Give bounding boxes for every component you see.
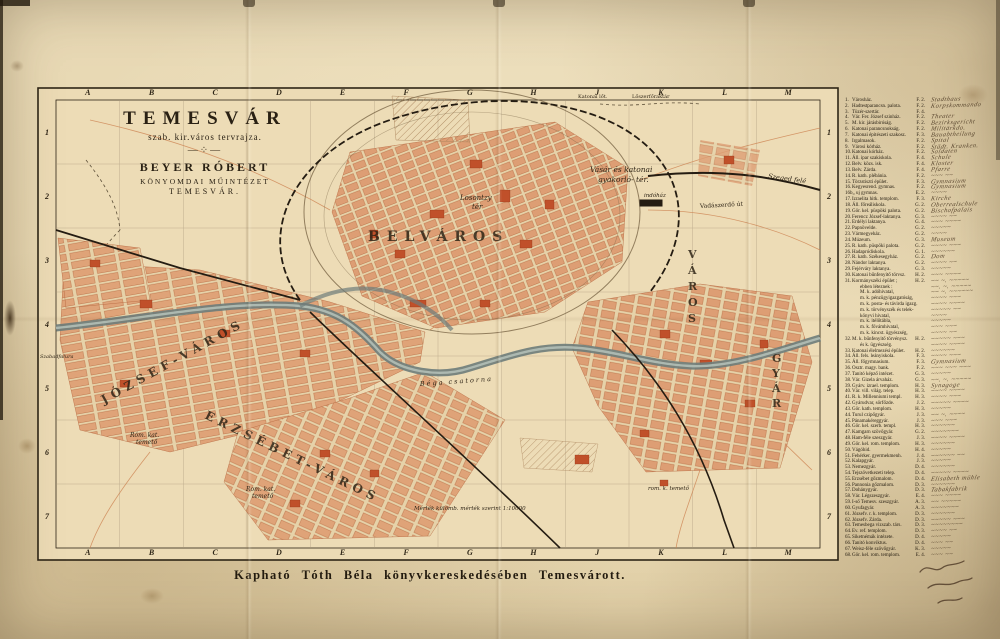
- handwritten-signature: [920, 561, 972, 603]
- legend-item-number: 68.: [845, 553, 852, 559]
- legend-item-label: Erdélyi laktanya.: [852, 220, 886, 225]
- legend-item-label: Pannonia gőzmalom.: [852, 483, 894, 488]
- legend-item-label: Gör. kel. rom. templom.: [852, 553, 900, 558]
- label-romkat-temeto-2a: Rom. kat.: [245, 486, 275, 493]
- label-scale-note: Mérték külömb. mérték szerint 1:10000: [413, 505, 526, 512]
- legend-item-label: m. k. fővámhivatal,: [860, 325, 899, 330]
- legend-item-label: Ferencz József-laktanya.: [852, 215, 901, 220]
- park-hatch-north: [392, 96, 470, 142]
- label-vasar-1: Vásár és katonai: [590, 165, 653, 174]
- legend-handwritten-note: ~~~ ~~: [930, 551, 953, 558]
- legend-item-label: Weisz-féle szövőgyár.: [852, 547, 896, 552]
- legend-item-label: Tejszövetkezeti telep.: [852, 471, 895, 476]
- map-subtitle: szab. kir.város tervrajza.: [100, 132, 310, 142]
- legend-item-label: Siketnémák intézete.: [852, 535, 894, 540]
- legend-item-label: Kegyesrend. gymnas.: [852, 185, 895, 190]
- legend-item-label: Vármegyeház.: [852, 232, 881, 237]
- legend-item-label: Áll. főgymnasium.: [852, 360, 890, 365]
- legend-item-label: Múzeum.: [852, 238, 871, 243]
- legend-item-label: Tanitó képző intézet.: [852, 372, 894, 377]
- legend-item-label: Hadapródiskola.: [852, 250, 885, 255]
- legend-item-label: Erzsébet gőzmalom.: [852, 477, 893, 482]
- legend-item-label: Vár. vill. világ. telep.: [852, 389, 894, 394]
- legend-item-label: Hadtestparancsn. palota.: [852, 104, 901, 109]
- legend-item-label: Fejérváry laktanya.: [852, 267, 891, 272]
- legend-item-label: m. k. kincst. ügyészség,: [860, 331, 908, 336]
- label-losontzy-ter: Losontzy: [459, 194, 493, 202]
- legend-item-label: Nándor laktanya.: [852, 261, 886, 266]
- legend-item-label: Kalapgyár.: [852, 459, 874, 464]
- legend-item-label: „ uj gymnas.: [853, 191, 878, 196]
- legend-item-label: Vár. Légszeszgyár.: [852, 494, 890, 499]
- legend-item-label: Kormányszéki épület ;: [852, 279, 897, 284]
- legend-item-label: Áll. ipar szakiskola.: [852, 156, 892, 161]
- legend-item-label: m. k. itélőtábla,: [860, 319, 891, 324]
- legend-item-label: Katonai parancsnokság.: [852, 127, 900, 132]
- legend-item-label: Pánamakéreggyár.: [852, 419, 889, 424]
- label-vasar-2: gyakorló- tér.: [598, 175, 649, 184]
- legend-item-label: könyvi hivatal,: [860, 314, 890, 319]
- legend-item-label: Gyárv. izrael. templom.: [852, 384, 899, 389]
- bottom-caption: Kapható Tóth Béla könyvkereskedésében Te…: [0, 568, 860, 583]
- legend-item-label: Katonai kórház.: [852, 150, 884, 155]
- legend-item-label: I-ső Temesv. szeszgyár.: [852, 500, 899, 505]
- legend-item-label: m. k. posta- és távirda igazg.: [860, 302, 917, 307]
- legend-item-label: Gör. kel. rom. templom.: [852, 442, 900, 447]
- label-romkat-temeto-3: rom. k. temető: [648, 485, 690, 492]
- legend-item-label: Ham-féle szeszgyár.: [852, 436, 893, 441]
- label-indohaz: indóház: [644, 192, 666, 199]
- title-block: TEMESVÁR szab. kir.város tervrajza. —⁘— …: [100, 108, 310, 196]
- legend-item-label: és k. ügyészség.: [860, 343, 892, 348]
- legend-item-label: Izraelita hitk. templom.: [852, 197, 899, 202]
- legend-list: 1.Városház.F. 2.Stadthaus2.Hadtestparanc…: [845, 98, 925, 558]
- legend-item-label: Vár. Fer. József szinház.: [852, 115, 901, 120]
- publisher-name: BEYER RÓBERT: [100, 160, 310, 175]
- map-title: TEMESVÁR: [100, 108, 310, 130]
- label-romkat-temeto-2b: temető: [252, 493, 274, 500]
- legend-item-label: Irgalmasok.: [852, 139, 876, 144]
- publisher-line3: TEMESVÁR.: [100, 187, 310, 196]
- legend-item-label: Fehérker. gyermekmenh.: [852, 454, 902, 459]
- legend-item-label: Katonai épitészeti szakosz.: [852, 133, 906, 138]
- legend-item-label: M. k. adóhivatal,: [860, 290, 894, 295]
- legend-item-label: Papnövelde.: [852, 226, 877, 231]
- legend-item-label: Vár. Gizela árvaház.: [852, 378, 893, 383]
- legend-item-label: Áll. főreáliskola.: [852, 203, 886, 208]
- legend-item-label: Dohánygyár.: [852, 488, 878, 493]
- legend-item-label: Belv. Zárda.: [852, 168, 877, 173]
- label-romkat-temeto-1b: temető: [136, 439, 158, 446]
- legend-item-label: Katonai bűnfenyitő törvsz.: [852, 273, 905, 278]
- legend-item-label: ebben léteznek :: [860, 285, 892, 290]
- legend-item-label: Gyufagyár.: [852, 506, 874, 511]
- legend-item-label: Gör. kel. püspöki palota.: [852, 209, 901, 214]
- legend-item-label: Nemezgyár.: [852, 465, 876, 470]
- label-losontzy-ter2: tér: [472, 203, 483, 211]
- legend-item-label: m. k. törvényszék és telek-: [860, 308, 914, 313]
- label-belvaros: BELVÁROS: [368, 227, 509, 245]
- legend-item-label: Katonai élelmezési épület.: [852, 349, 905, 354]
- legend-item-label: Gör. kel. szerb. templ.: [852, 424, 896, 429]
- legend-item-label: R. kath. plébánia.: [852, 174, 887, 179]
- industrial-blocks-west: [58, 238, 150, 308]
- legend-item-label: Józsefv. Zárda.: [852, 518, 882, 523]
- legend-item-label: Városház.: [852, 98, 872, 103]
- legend-item-label: Józsefv. r. k. templom.: [852, 512, 897, 517]
- label-romkat-temeto-1a: Róm. kat.: [129, 432, 159, 439]
- legend-item-label: Kamgarn szövőgyár.: [852, 430, 893, 435]
- legend-item-label: R. k. Millenniumi templ.: [852, 395, 902, 400]
- legend-item-label: Áll. fels. leányiskola.: [852, 354, 895, 359]
- label-szabadfalura: Szabadfalura: [40, 354, 73, 360]
- legend-item: 68.Gör. kel. rom. templom.E. 4.~~~ ~~: [845, 553, 925, 559]
- legend-item-label: Gör. kath. templom.: [852, 407, 892, 412]
- legend-item-label: Belv. közs. isk.: [852, 162, 882, 167]
- legend-item-label: Városi kórház.: [852, 145, 881, 150]
- legend-item-gridref: E. 4.: [916, 553, 925, 559]
- legend-item-label: M. kir. járásbiróság.: [852, 121, 892, 126]
- legend-item-label: Tüzér-szertár.: [852, 110, 880, 115]
- label-katonai-loter: Katonai lőt.: [578, 93, 608, 100]
- ornament-divider: —⁘—: [100, 145, 310, 156]
- legend-item-label: Turul czipőgyár.: [852, 413, 885, 418]
- legend-item-label: Osztr. magy. bank.: [852, 366, 889, 371]
- legend-item-label: m. k. pénzügyigazgatóság,: [860, 296, 913, 301]
- legend-item-label: Ev. ref. templom.: [852, 529, 887, 534]
- label-loszerforaktar: Lőszerfőraktár: [632, 93, 670, 100]
- legend-item-label: Gyárudvar, sörfőzde.: [852, 401, 894, 406]
- publisher-line2: KÖNYOMDAI MŰINTÉZET: [100, 177, 310, 186]
- legend-item-label: Temesbega vizszab. társ.: [852, 523, 902, 528]
- legend-item-label: R. kath. püspöki palota.: [852, 244, 900, 249]
- legend-item-label: Vágóhid.: [852, 448, 870, 453]
- legend-item-label: M. k. bűnfenyitő törvénysz.: [852, 337, 908, 342]
- legend-item-label: Tanitó konviktus.: [852, 541, 887, 546]
- legend-item-label: R. kath. Székesegyház.: [852, 255, 898, 260]
- legend-item-label: Törzstiszti épület.: [852, 180, 888, 185]
